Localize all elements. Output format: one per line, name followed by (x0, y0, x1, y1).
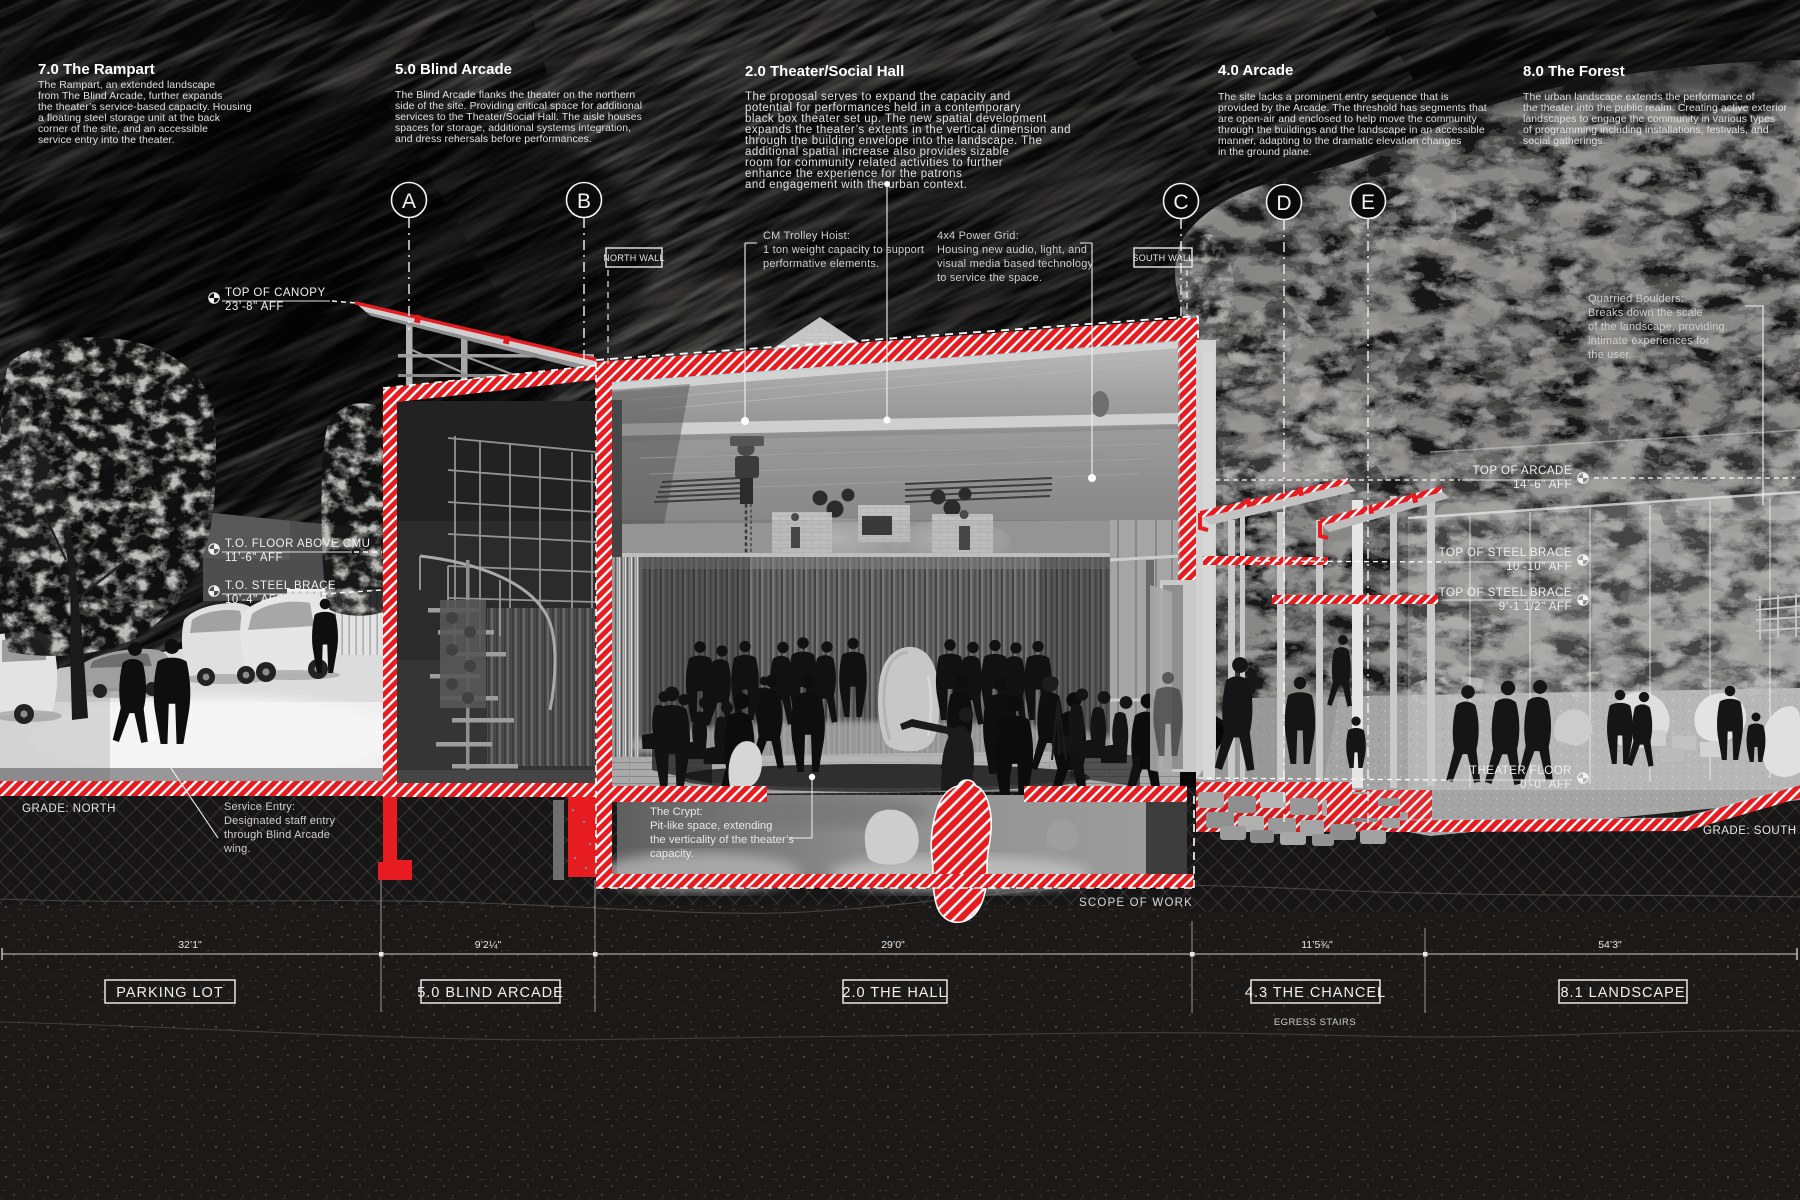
svg-text:landscapes to engage the commu: landscapes to engage the community in va… (1523, 114, 1775, 125)
svg-text:4.3 THE CHANCEL: 4.3 THE CHANCEL (1245, 985, 1386, 1001)
svg-text:PARKING LOT: PARKING LOT (116, 985, 223, 1001)
svg-text:a floating steel storage unit: a floating steel storage unit at the bac… (38, 113, 221, 124)
svg-text:corner of the site, and an acc: corner of the site, and an accessible (38, 124, 208, 135)
svg-text:8.0 The Forest: 8.0 The Forest (1523, 63, 1625, 80)
svg-text:Breaks down the scale: Breaks down the scale (1588, 307, 1703, 319)
svg-text:The site lacks a prominent ent: The site lacks a prominent entry sequenc… (1218, 92, 1449, 103)
svg-text:CM Trolley Hoist:: CM Trolley Hoist: (763, 230, 850, 242)
svg-text:Pit-like space, extending: Pit-like space, extending (650, 820, 772, 832)
svg-text:32’1": 32’1" (178, 939, 202, 951)
svg-text:SOUTH WALL: SOUTH WALL (1132, 253, 1193, 263)
svg-text:provided by the Arcade. The th: provided by the Arcade. The threshold ha… (1218, 103, 1487, 114)
svg-text:1 ton weight capacity to supp: 1 ton weight capacity to support (763, 244, 924, 256)
svg-text:4.0 Arcade: 4.0 Arcade (1218, 62, 1293, 79)
svg-text:0’-0" AFF: 0’-0" AFF (1520, 779, 1572, 791)
svg-text:A: A (402, 190, 416, 213)
svg-text:THEATER FLOOR: THEATER FLOOR (1470, 765, 1572, 777)
svg-text:The Rampart, an extended lands: The Rampart, an extended landscape (38, 80, 215, 91)
svg-text:TOP OF STEEL BRACE: TOP OF STEEL BRACE (1439, 587, 1572, 599)
svg-text:through the buildings and the: through the buildings and the landscape … (1218, 125, 1485, 136)
svg-text:5.0 BLIND ARCADE: 5.0 BLIND ARCADE (417, 985, 564, 1001)
svg-text:E: E (1361, 191, 1375, 214)
svg-text:EGRESS STAIRS: EGRESS STAIRS (1274, 1017, 1356, 1028)
svg-text:T.O. STEEL BRACE: T.O. STEEL BRACE (225, 580, 336, 592)
svg-text:of programming including insta: of programming including installations, … (1523, 125, 1769, 136)
svg-text:10’-4" AFF: 10’-4" AFF (225, 594, 284, 606)
svg-text:2.0 Theater/Social Hall: 2.0 Theater/Social Hall (745, 63, 904, 80)
svg-text:capacity.: capacity. (650, 848, 694, 860)
svg-text:TOP OF STEEL BRACE: TOP OF STEEL BRACE (1439, 547, 1572, 559)
svg-text:23’-8" AFF: 23’-8" AFF (225, 301, 284, 313)
svg-text:5.0 Blind Arcade: 5.0 Blind Arcade (395, 61, 512, 78)
svg-text:NORTH WALL: NORTH WALL (603, 253, 665, 263)
svg-text:9’2¼": 9’2¼" (475, 939, 502, 951)
svg-text:11’-6" AFF: 11’-6" AFF (225, 552, 283, 564)
svg-text:the user.: the user. (1588, 349, 1632, 361)
svg-text:10’-10" AFF: 10’-10" AFF (1506, 561, 1572, 573)
svg-text:14’-6" AFF: 14’-6" AFF (1513, 479, 1572, 491)
svg-text:to service the space.: to service the space. (937, 272, 1042, 284)
svg-text:the verticality of the theater: the verticality of the theater’s (650, 834, 794, 846)
svg-text:the theater’s service-based ca: the theater’s service-based capacity. Ho… (38, 102, 252, 113)
svg-text:from The Blind Arcade, further: from The Blind Arcade, further expands (38, 91, 222, 102)
svg-text:Housing new audio, light, and: Housing new audio, light, and (937, 244, 1087, 256)
svg-text:SCOPE OF WORK: SCOPE OF WORK (1079, 897, 1193, 909)
svg-text:and engagement with the urban: and engagement with the urban context. (745, 179, 967, 191)
svg-text:social gatherings.: social gatherings. (1523, 136, 1606, 147)
svg-text:side of the site. Providing cr: side of the site. Providing critical spa… (395, 101, 642, 112)
svg-text:service entry into the theater: service entry into the theater. (38, 135, 175, 146)
svg-text:of the landscape, providing: of the landscape, providing (1588, 321, 1725, 333)
svg-text:54’3": 54’3" (1598, 939, 1622, 951)
svg-text:performative elements.: performative elements. (763, 258, 879, 270)
svg-text:Service Entry:: Service Entry: (224, 801, 295, 813)
svg-text:Designated staff entry: Designated staff entry (224, 815, 336, 827)
svg-text:D: D (1276, 192, 1291, 215)
svg-text:TOP OF ARCADE: TOP OF ARCADE (1473, 465, 1572, 477)
svg-text:and dress rehersals before per: and dress rehersals before performances. (395, 134, 592, 145)
svg-text:8.1 LANDSCAPE: 8.1 LANDSCAPE (1560, 985, 1685, 1001)
svg-text:visual media based technology: visual media based technology (937, 258, 1094, 270)
svg-text:TOP OF CANOPY: TOP OF CANOPY (225, 287, 326, 299)
svg-text:9’-1 1/2" AFF: 9’-1 1/2" AFF (1499, 601, 1572, 613)
svg-text:11’5¾": 11’5¾" (1301, 939, 1333, 951)
svg-text:The Crypt:: The Crypt: (650, 806, 703, 818)
svg-text:7.0 The Rampart: 7.0 The Rampart (38, 61, 155, 78)
svg-text:C: C (1173, 191, 1188, 214)
svg-text:The urban landscape extends th: The urban landscape extends the performa… (1523, 92, 1755, 103)
svg-text:spaces for storage, additional: spaces for storage, additional systems i… (395, 123, 631, 134)
svg-text:the theater into the public re: the theater into the public realm. Creat… (1523, 103, 1788, 114)
svg-text:B: B (577, 190, 591, 213)
svg-text:4x4 Power Grid:: 4x4 Power Grid: (937, 230, 1019, 242)
svg-text:are open-air and enclosed to h: are open-air and enclosed to help move t… (1218, 114, 1477, 125)
svg-text:wing.: wing. (223, 843, 251, 855)
svg-text:through Blind Arcade: through Blind Arcade (224, 829, 330, 841)
svg-text:GRADE: NORTH: GRADE: NORTH (22, 803, 116, 815)
svg-text:intimate experiences for: intimate experiences for (1588, 335, 1710, 347)
svg-text:The Blind Arcade flanks the th: The Blind Arcade flanks the theater on t… (395, 90, 635, 101)
svg-text:Quarried Boulders:: Quarried Boulders: (1588, 293, 1684, 305)
svg-text:T.O. FLOOR ABOVE CMU: T.O. FLOOR ABOVE CMU (225, 538, 370, 550)
svg-text:in the ground plane.: in the ground plane. (1218, 147, 1312, 158)
svg-text:services to the Theater/Social: services to the Theater/Social Hall. The… (395, 112, 642, 123)
svg-text:manner, adapting to the dramat: manner, adapting to the dramatic elevati… (1218, 136, 1462, 147)
svg-text:GRADE: SOUTH: GRADE: SOUTH (1703, 825, 1797, 837)
svg-text:2.0 THE HALL: 2.0 THE HALL (842, 985, 947, 1001)
svg-text:29’0": 29’0" (881, 939, 905, 951)
